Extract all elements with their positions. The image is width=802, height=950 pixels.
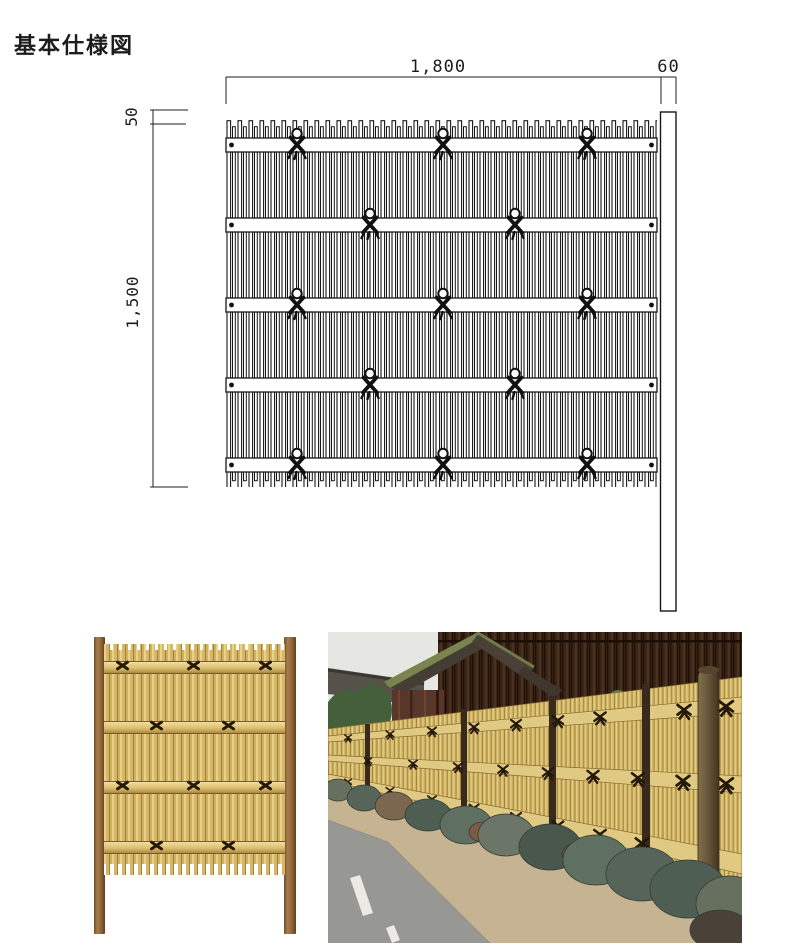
rope-knot-icon: [148, 718, 165, 732]
panel-bottom-edge: [104, 864, 285, 875]
product-bamboo-panel: [104, 644, 285, 864]
panel-rail: [104, 721, 285, 734]
fence-rail: [226, 218, 657, 232]
page: 基本仕様図: [0, 0, 802, 950]
dim-height-label: 1,500: [123, 275, 142, 328]
installation-photo: [328, 632, 742, 943]
dim-top-label: 50: [122, 107, 141, 126]
fence-post: [661, 112, 677, 611]
rope-knot-icon: [114, 658, 131, 672]
panel-rail: [104, 841, 285, 854]
rope-knot-icon: [185, 658, 202, 672]
rope-knot-icon: [257, 658, 274, 672]
rope-knot-icon: [148, 838, 165, 852]
dim-width-label: 1,800: [410, 57, 466, 77]
dim-post-label: 60: [657, 57, 679, 77]
rope-knot-icon: [114, 778, 131, 792]
foreground-pole: [698, 666, 719, 882]
product-right-post: [284, 637, 296, 934]
rope-knot-icon: [220, 838, 237, 852]
rope-knot-icon: [257, 778, 274, 792]
spec-drawing: 1,800 60 50 1,500: [0, 0, 802, 625]
panel-top-edge: [104, 644, 285, 650]
fence-rail: [226, 378, 657, 392]
product-photo: [88, 634, 298, 936]
rope-knot-icon: [220, 718, 237, 732]
rope-knot-icon: [185, 778, 202, 792]
fence-post: [461, 709, 467, 821]
